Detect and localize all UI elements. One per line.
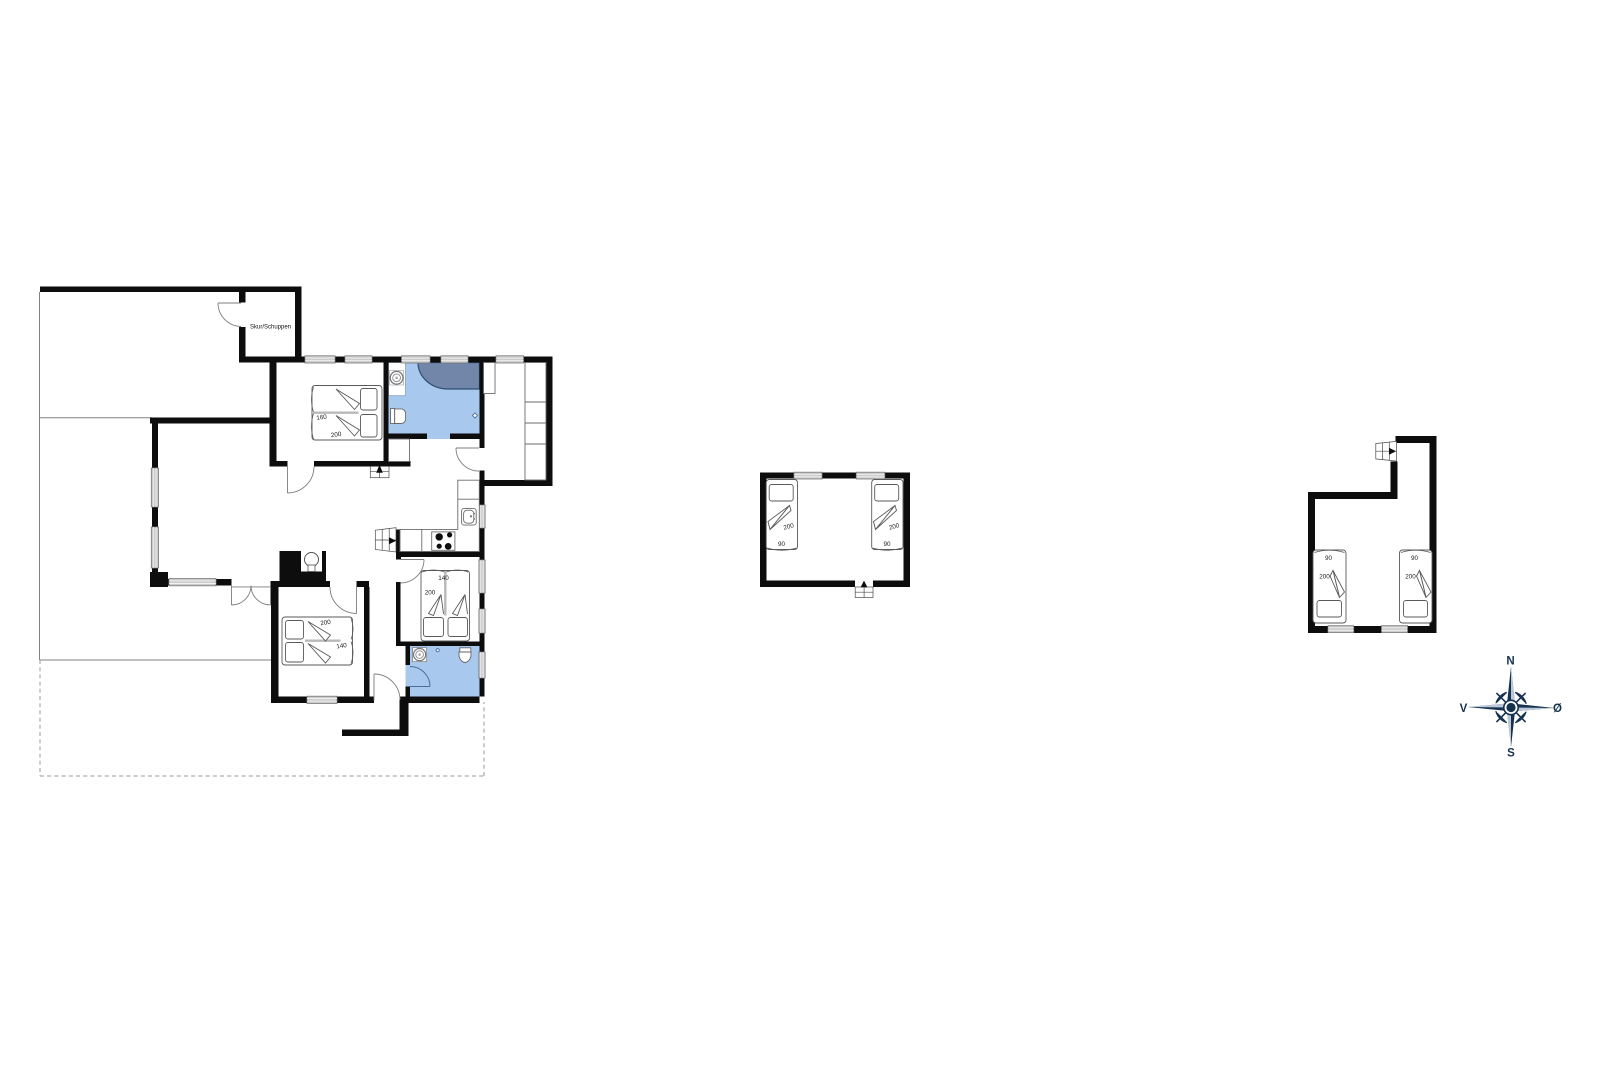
svg-text:90: 90 — [1325, 555, 1333, 562]
svg-text:140: 140 — [336, 642, 348, 650]
svg-text:Skur/Schuppen: Skur/Schuppen — [250, 325, 291, 331]
svg-text:90: 90 — [778, 541, 786, 548]
svg-text:160: 160 — [316, 414, 328, 422]
svg-text:140: 140 — [438, 575, 449, 582]
svg-text:90: 90 — [883, 541, 891, 548]
svg-text:200: 200 — [1405, 574, 1416, 581]
svg-text:200: 200 — [1319, 574, 1330, 581]
svg-text:90: 90 — [1411, 555, 1419, 562]
svg-text:200: 200 — [425, 590, 436, 597]
svg-text:V: V — [1460, 703, 1468, 715]
svg-text:S: S — [1507, 748, 1515, 760]
svg-text:Ø: Ø — [1553, 703, 1562, 715]
svg-text:N: N — [1506, 656, 1514, 668]
